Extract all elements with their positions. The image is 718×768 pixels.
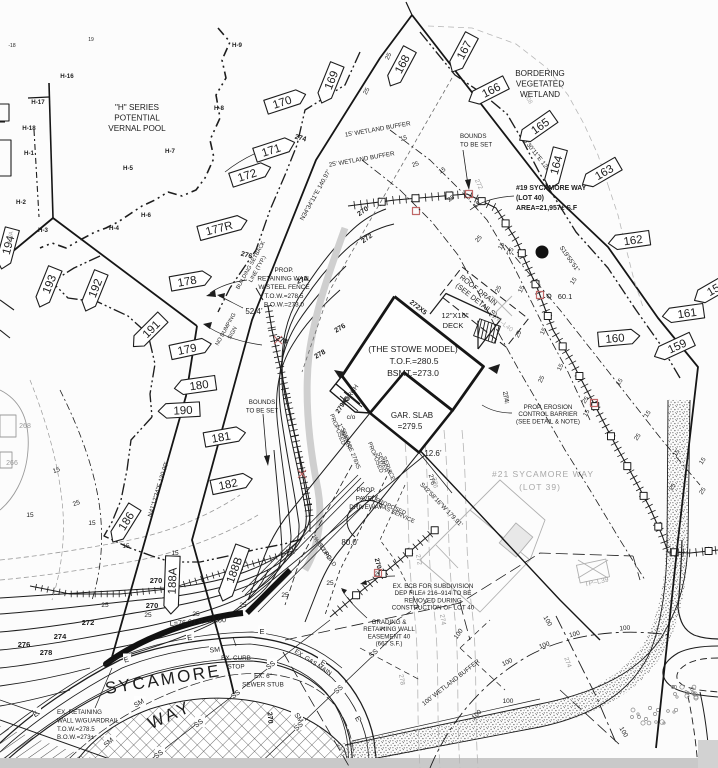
svg-text:25: 25 [144, 612, 152, 619]
svg-text:PROP. EROSION: PROP. EROSION [524, 404, 573, 411]
svg-text:TO BE SET: TO BE SET [460, 141, 492, 148]
svg-text:B.O.W.=273.0: B.O.W.=273.0 [264, 301, 304, 308]
svg-text:(667 S.F.): (667 S.F.) [376, 641, 403, 648]
svg-text:H-3: H-3 [38, 227, 49, 234]
svg-text:AREA=21,957± S.F: AREA=21,957± S.F [516, 205, 577, 212]
svg-text:RETAINING WALL: RETAINING WALL [257, 276, 311, 283]
svg-text:278: 278 [40, 648, 53, 657]
svg-text:268: 268 [19, 423, 31, 430]
svg-text:H-4: H-4 [109, 225, 120, 232]
svg-text:GAR. SLAB: GAR. SLAB [391, 411, 433, 420]
svg-text:H-2: H-2 [16, 199, 27, 206]
svg-text:H-1: H-1 [24, 150, 35, 157]
svg-text:25: 25 [326, 580, 334, 587]
svg-text:POTENTIAL: POTENTIAL [114, 113, 160, 122]
svg-text:270: 270 [150, 576, 163, 585]
svg-text:H-8: H-8 [214, 105, 225, 112]
svg-text:WALL W/GUARDRAIL: WALL W/GUARDRAIL [57, 717, 119, 724]
svg-text:19: 19 [88, 37, 94, 43]
svg-text:PAVED: PAVED [356, 496, 377, 503]
svg-text:100: 100 [503, 698, 514, 705]
svg-text:12.6’: 12.6’ [424, 449, 442, 458]
svg-text:WETLAND: WETLAND [520, 90, 560, 99]
svg-text:(LOT 40): (LOT 40) [516, 195, 544, 202]
svg-text:H-16: H-16 [60, 73, 74, 80]
svg-text:25: 25 [239, 602, 247, 609]
svg-text:"H" SERIES: "H" SERIES [115, 103, 160, 112]
svg-text:H-5: H-5 [123, 165, 134, 172]
svg-text:c/o: c/o [347, 414, 356, 421]
svg-text:12"X16": 12"X16" [441, 311, 468, 320]
svg-text:H-6: H-6 [141, 212, 152, 219]
svg-text:EX. ECB FOR SUBDIVISION: EX. ECB FOR SUBDIVISION [393, 583, 474, 590]
svg-text:CONTROL BARRIER: CONTROL BARRIER [518, 411, 578, 418]
svg-text:DEP FILE# 216–914 TO BE: DEP FILE# 216–914 TO BE [395, 590, 472, 597]
svg-text:W/STEEL FENCE: W/STEEL FENCE [258, 284, 309, 291]
svg-text:274: 274 [54, 632, 67, 641]
svg-text:E: E [259, 627, 264, 636]
svg-text:#19 SYCAMORE WAY: #19 SYCAMORE WAY [516, 185, 587, 192]
svg-text:BORDERING: BORDERING [515, 69, 565, 78]
svg-text:(LOT 39): (LOT 39) [519, 482, 561, 492]
svg-text:60.1: 60.1 [558, 292, 573, 301]
svg-text:CONSTRUCTION OF LOT 40: CONSTRUCTION OF LOT 40 [392, 605, 475, 612]
svg-text:VERNAL POOL: VERNAL POOL [108, 124, 166, 133]
svg-text:PROP.: PROP. [356, 487, 375, 494]
svg-text:272: 272 [82, 618, 95, 627]
svg-text:(THE STOWE MODEL): (THE STOWE MODEL) [368, 344, 458, 354]
svg-text:PROP.: PROP. [274, 267, 293, 274]
svg-text:REMOVED DURING: REMOVED DURING [404, 597, 462, 604]
svg-text:T.O.W.=278.5: T.O.W.=278.5 [57, 726, 95, 733]
svg-text:B.O.W.=273±: B.O.W.=273± [57, 734, 95, 741]
svg-text:T.O.W.=278.5: T.O.W.=278.5 [265, 293, 304, 300]
svg-text:BOUNDS: BOUNDS [249, 399, 275, 406]
svg-text:276: 276 [18, 640, 31, 649]
svg-text:270: 270 [146, 601, 159, 610]
svg-text:EX. 6": EX. 6" [254, 673, 272, 680]
svg-text:15: 15 [26, 512, 34, 519]
svg-text:TO BE SET: TO BE SET [246, 407, 278, 414]
svg-text:SEWER STUB: SEWER STUB [242, 682, 284, 689]
svg-text:H-9: H-9 [232, 42, 243, 49]
svg-text:EX. RETAINING: EX. RETAINING [57, 709, 102, 716]
svg-text:160: 160 [605, 332, 625, 346]
svg-text:VEGETATED: VEGETATED [516, 79, 564, 88]
svg-text:100: 100 [619, 625, 631, 633]
svg-text:15: 15 [88, 520, 96, 527]
svg-text:BOUNDS: BOUNDS [460, 133, 486, 140]
svg-text:-18: -18 [8, 43, 15, 49]
svg-text:H-17: H-17 [31, 99, 45, 106]
svg-text:DECK: DECK [443, 321, 464, 330]
svg-text:25: 25 [101, 602, 109, 609]
svg-text:#21 SYCAMORE WAY: #21 SYCAMORE WAY [492, 469, 594, 479]
svg-text:RETAINING WALL: RETAINING WALL [363, 626, 415, 633]
svg-text:52.4’: 52.4’ [245, 307, 263, 316]
svg-text:T.O.F.=280.5: T.O.F.=280.5 [390, 356, 439, 366]
svg-text:SM: SM [209, 647, 220, 655]
svg-text:190: 190 [173, 405, 193, 418]
svg-text:BSMT.=273.0: BSMT.=273.0 [387, 368, 439, 378]
svg-text:H-7: H-7 [165, 148, 176, 155]
svg-text:GRADING &: GRADING & [372, 619, 408, 626]
svg-text:=279.5: =279.5 [398, 422, 423, 431]
svg-text:EASEMENT 40: EASEMENT 40 [368, 633, 411, 640]
svg-text:188A: 188A [167, 567, 180, 595]
svg-text:270: 270 [265, 712, 273, 724]
svg-text:80.0’: 80.0’ [341, 538, 359, 547]
svg-text:STOP: STOP [227, 664, 244, 671]
